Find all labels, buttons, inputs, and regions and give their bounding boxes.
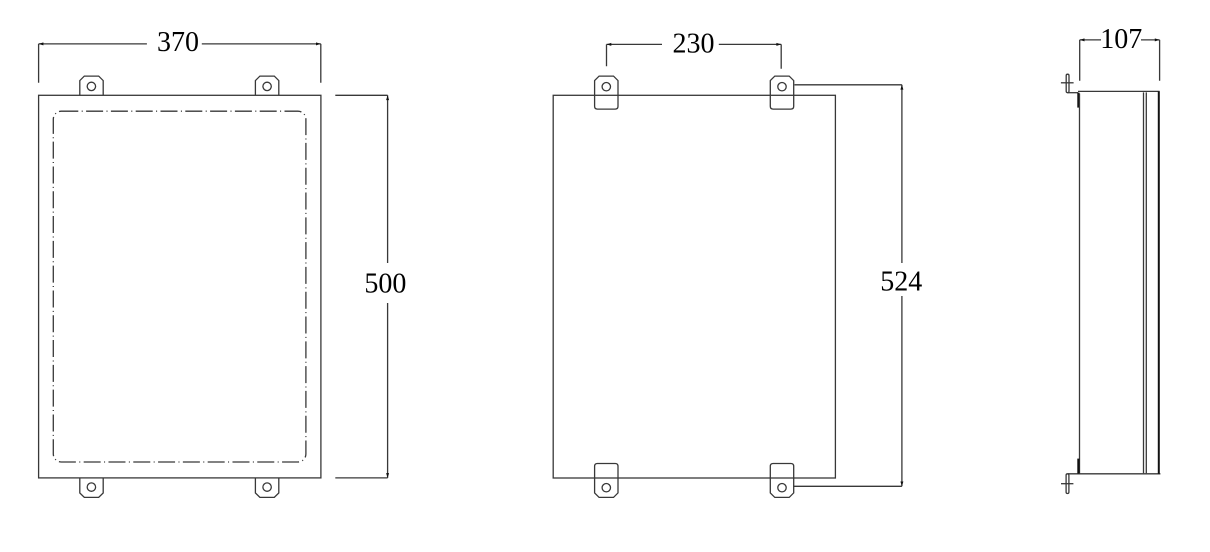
svg-text:524: 524 xyxy=(880,267,922,298)
svg-text:370: 370 xyxy=(157,27,199,58)
svg-text:230: 230 xyxy=(673,28,715,59)
svg-text:107: 107 xyxy=(1100,24,1142,55)
svg-text:500: 500 xyxy=(364,268,406,299)
